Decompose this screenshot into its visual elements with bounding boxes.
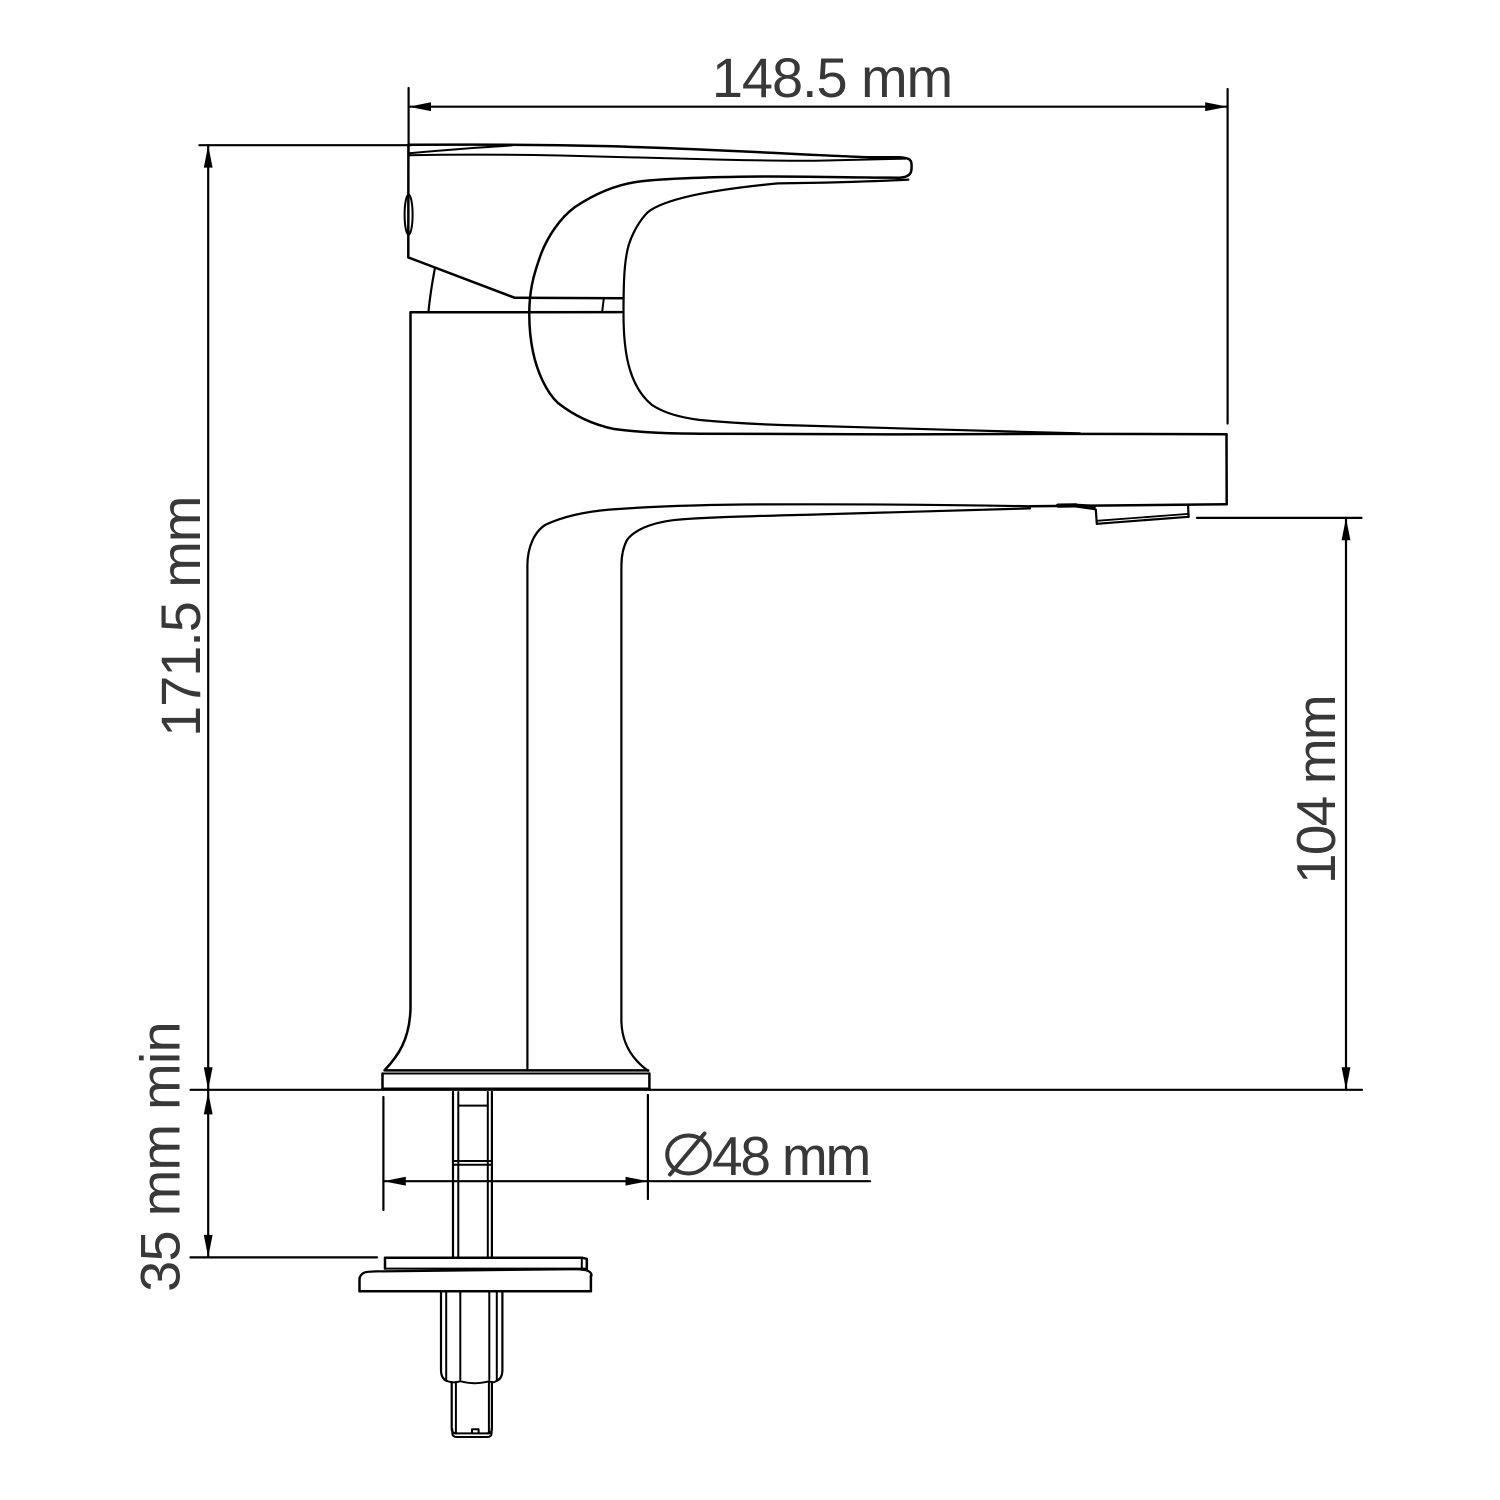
svg-text:35 mm min: 35 mm min [129,1022,192,1292]
svg-text:48 mm: 48 mm [712,1125,869,1187]
svg-text:104 mm: 104 mm [1285,696,1347,884]
svg-text:148.5 mm: 148.5 mm [712,46,952,109]
svg-text:171.5 mm: 171.5 mm [149,497,212,737]
